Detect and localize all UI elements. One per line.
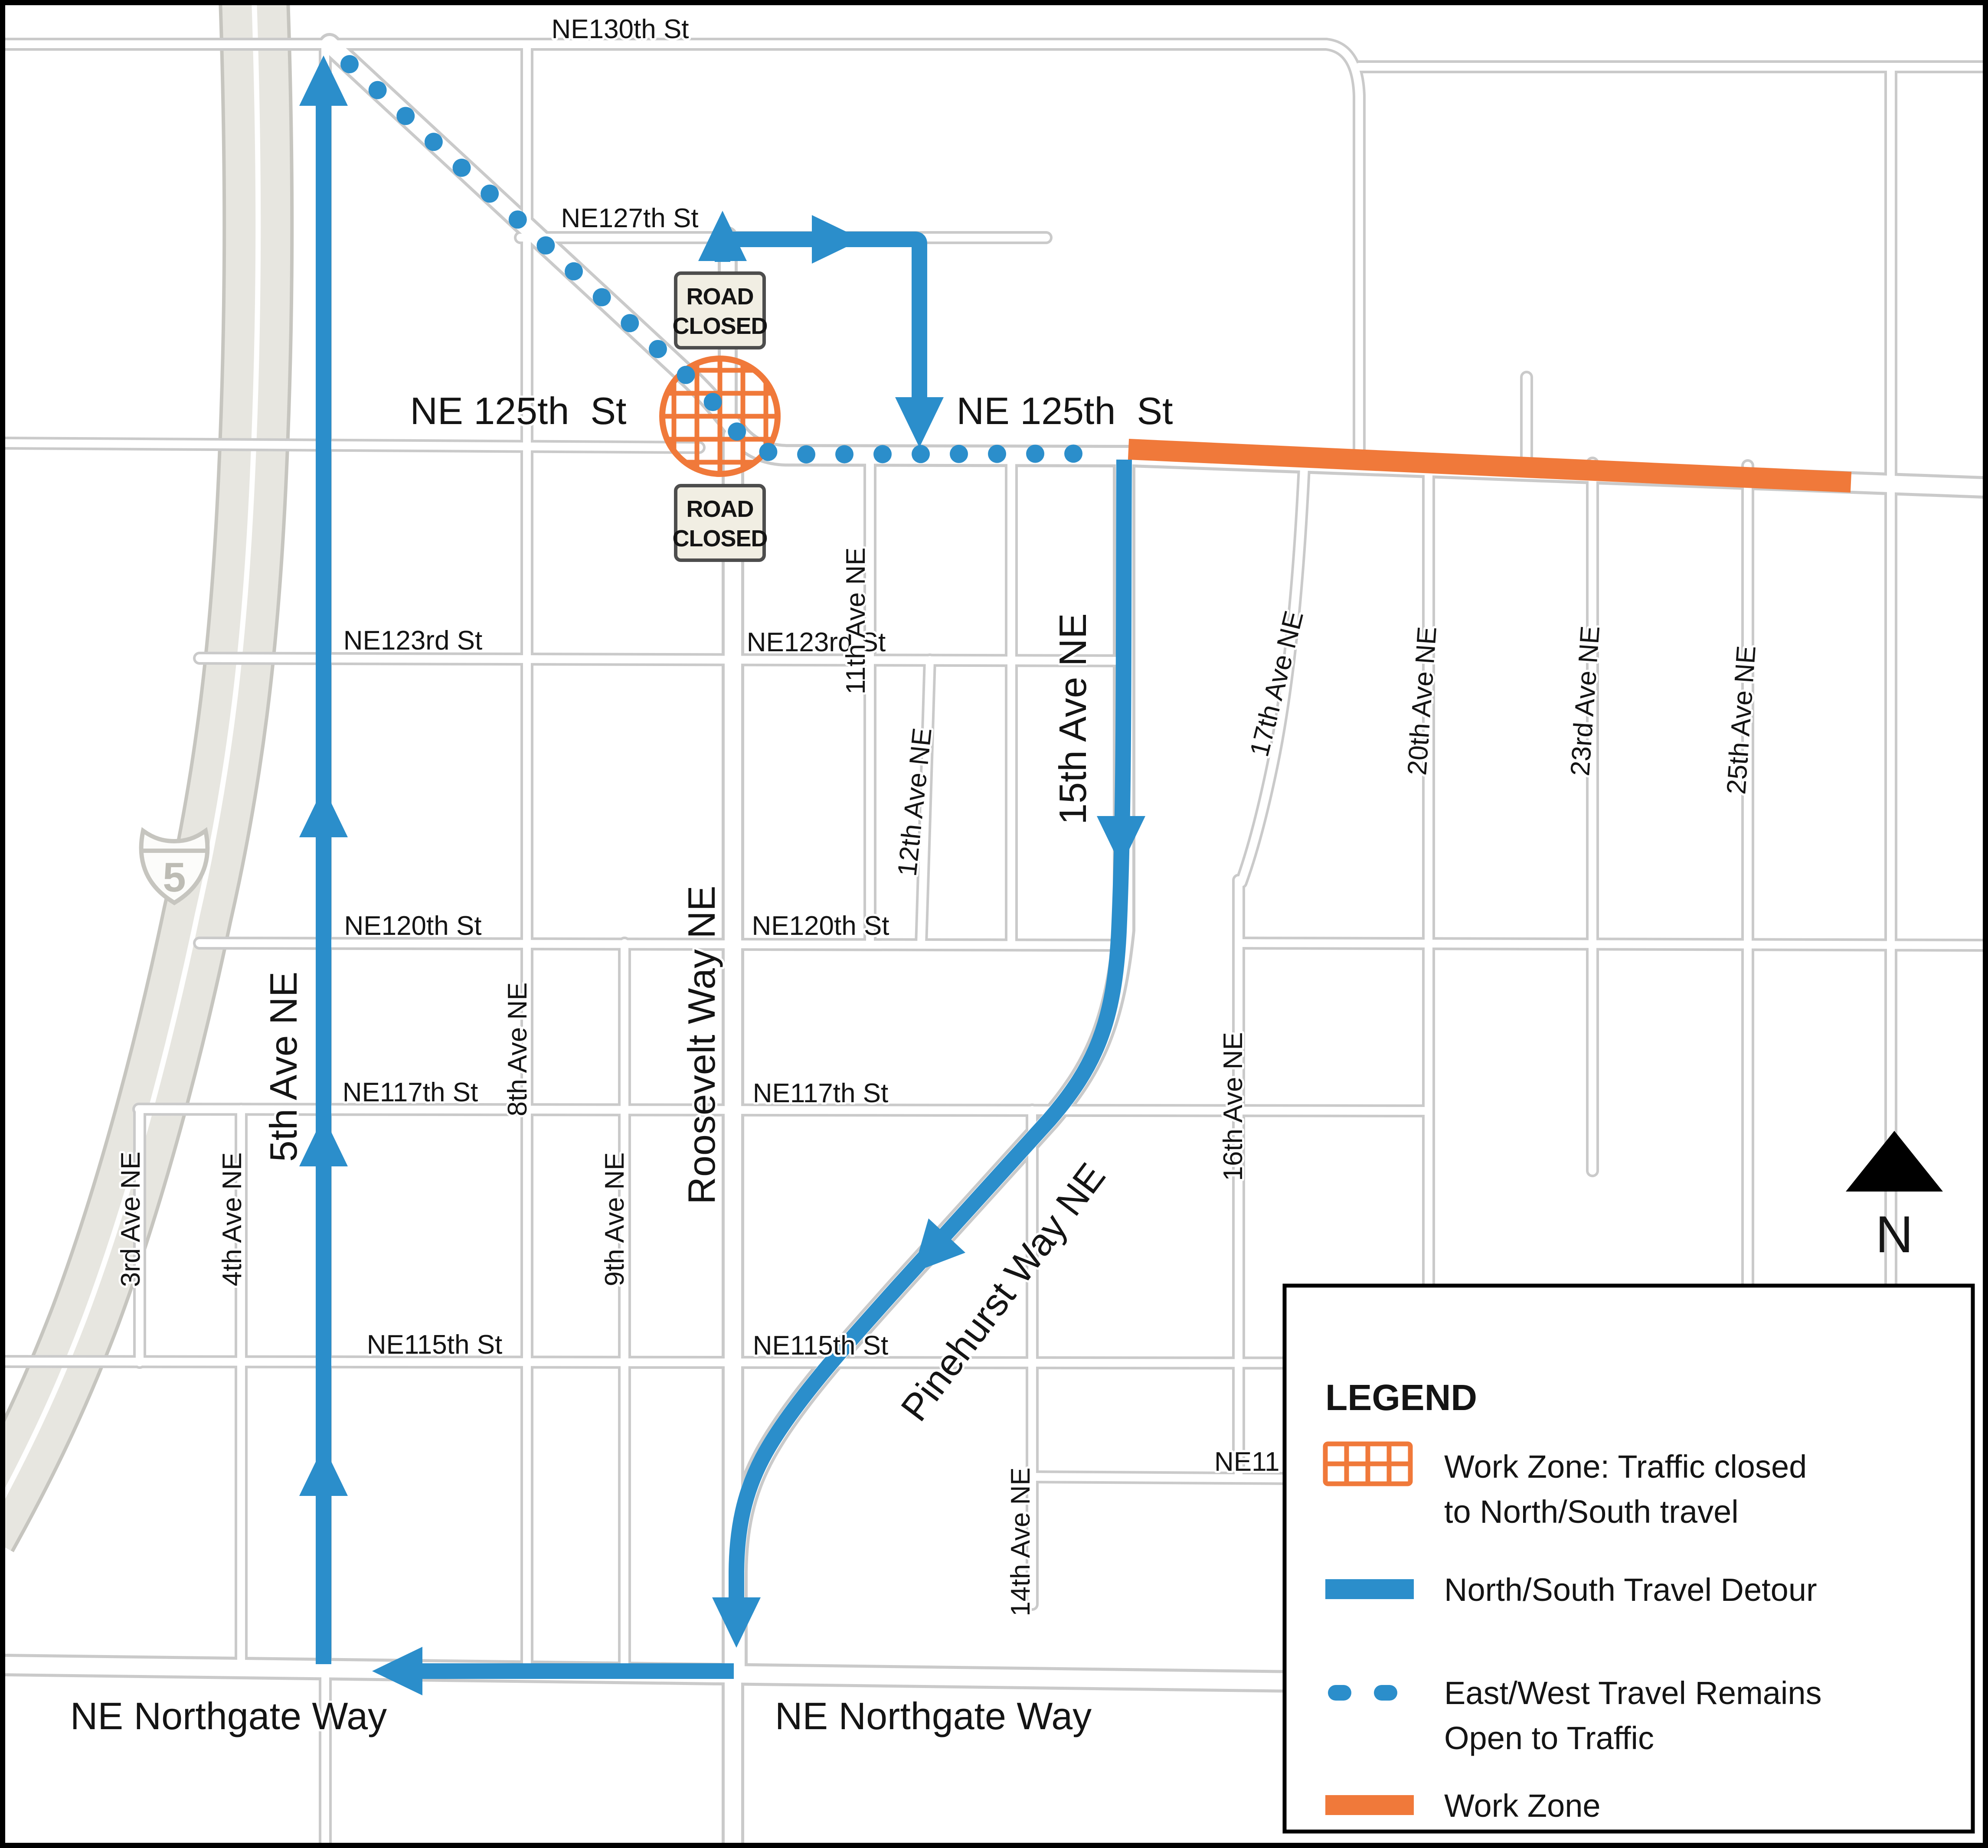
avenue-label-4th-ave-ne: 4th Ave NE [217, 1152, 247, 1286]
street-label-ne-northgate-way-east: NE Northgate Way [775, 1695, 1092, 1737]
street-label-ne-130th-st: NE130th St [551, 14, 689, 44]
road-closed-line2: CLOSED [672, 526, 767, 552]
legend-item-open-traffic-line1: East/West Travel Remains [1444, 1675, 1821, 1711]
street-label-ne-117th-st-west: NE117th St [343, 1077, 478, 1107]
street-label-ne11-clipped: NE11 [1214, 1447, 1280, 1477]
road-closed-sign-north: ROAD CLOSED [672, 273, 767, 348]
avenue-label-5th-ave-ne: 5th Ave NE [262, 972, 305, 1162]
street-label-ne-125th-st-east: NE 125th St [957, 389, 1173, 432]
freeway-i5: 5 [0, 0, 258, 1535]
street-label-ne-northgate-way-west: NE Northgate Way [70, 1695, 387, 1737]
street-label-ne-117th-st-east: NE117th St [753, 1078, 888, 1108]
avenue-label-pinehurst-way-ne: Pinehurst Way NE [893, 1155, 1114, 1429]
detour-line-icon [1325, 1579, 1414, 1599]
avenue-label-20th-ave-ne: 20th Ave NE [1402, 626, 1442, 777]
street-label-ne-120th-st-west: NE120th St [344, 911, 481, 941]
avenue-label-17th-ave-ne: 17th Ave NE [1244, 608, 1309, 760]
legend-item-detour: North/South Travel Detour [1444, 1572, 1817, 1608]
north-arrow-icon [1846, 1131, 1943, 1192]
legend: LEGEND Work Zone: Traffic closed to Nort… [1285, 1286, 1973, 1832]
work-zone-line-icon [1325, 1795, 1414, 1815]
road-closed-line1: ROAD [687, 284, 754, 310]
avenue-label-roosevelt-way-ne: Roosevelt Way NE [680, 885, 723, 1204]
street-label-ne-120th-st-east: NE120th St [752, 911, 889, 941]
avenue-label-14th-ave-ne: 14th Ave NE [1006, 1467, 1036, 1616]
avenue-label-11th-ave-ne: 11th Ave NE [841, 548, 871, 695]
street-label-ne-115th-st-west: NE115th St [367, 1330, 502, 1360]
detour-map: 5 [0, 0, 1988, 1848]
street-label-ne-127th-st: NE127th St [561, 203, 698, 233]
street-label-ne-125th-st-west: NE 125th St [410, 389, 627, 432]
interstate-number: 5 [163, 854, 186, 901]
street-label-ne-123rd-st-west: NE123rd St [343, 626, 483, 656]
legend-item-work-zone-closed-line1: Work Zone: Traffic closed [1444, 1449, 1807, 1485]
avenue-label-15th-ave-ne: 15th Ave NE [1051, 613, 1094, 825]
road-closed-line1: ROAD [687, 496, 754, 522]
legend-item-open-traffic-line2: Open to Traffic [1444, 1720, 1654, 1756]
avenue-label-16th-ave-ne: 16th Ave NE [1218, 1032, 1248, 1181]
road-closed-line2: CLOSED [672, 313, 767, 339]
avenue-label-23rd-ave-ne: 23rd Ave NE [1565, 625, 1605, 777]
road-closed-sign-south: ROAD CLOSED [672, 486, 767, 560]
north-arrow-label: N [1876, 1205, 1913, 1264]
street-label-ne-115th-st-east: NE115th St [753, 1331, 888, 1361]
avenue-label-8th-ave-ne: 8th Ave NE [503, 982, 533, 1116]
legend-item-work-zone-closed-line2: to North/South travel [1444, 1494, 1739, 1530]
avenue-label-25th-ave-ne: 25th Ave NE [1721, 645, 1762, 796]
avenue-label-3rd-ave-ne: 3rd Ave NE [116, 1152, 146, 1287]
avenue-label-9th-ave-ne: 9th Ave NE [600, 1152, 630, 1286]
legend-item-work-zone: Work Zone [1444, 1788, 1601, 1824]
legend-title: LEGEND [1325, 1377, 1477, 1418]
